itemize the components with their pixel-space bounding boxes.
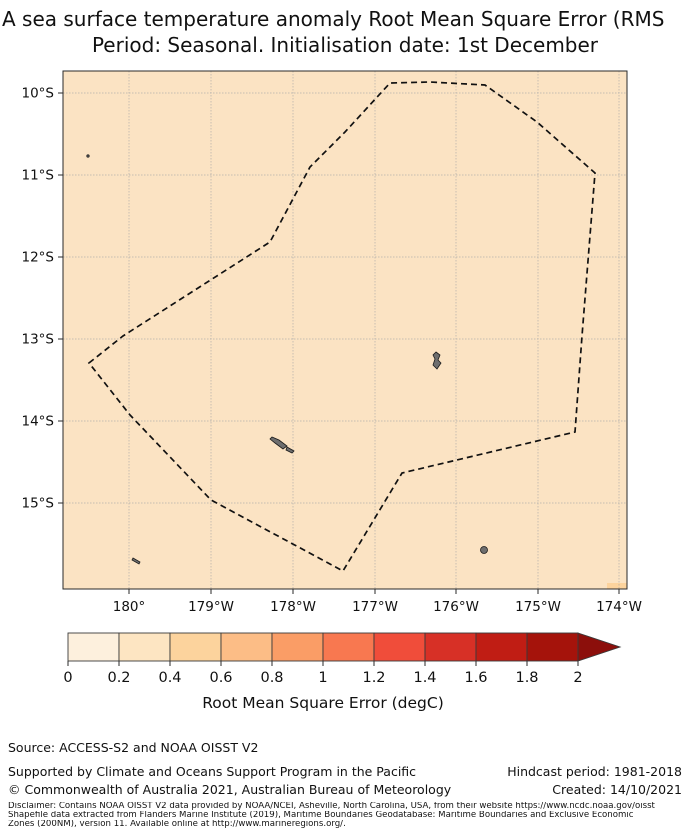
cbar-seg-4 <box>272 633 323 661</box>
y-tick-label: 12°S <box>22 250 55 266</box>
x-tick-label: 179°W <box>188 599 234 615</box>
cbar-seg-2 <box>170 633 221 661</box>
island-south-icon <box>481 547 488 554</box>
y-axis-tick-labels: 10°S 11°S 12°S 13°S 14°S 15°S <box>22 86 55 512</box>
cbar-seg-9 <box>527 633 578 661</box>
cbar-tick-label: 1.8 <box>515 670 538 686</box>
cbar-tick-label: 0 <box>63 670 72 686</box>
copyright-line: © Commonwealth of Australia 2021, Austra… <box>8 782 451 798</box>
cbar-tick-label: 2 <box>573 670 582 686</box>
cbar-extend-arrow <box>578 633 620 661</box>
y-tick-label: 13°S <box>22 332 55 348</box>
figure-title-line2: Period: Seasonal. Initialisation date: 1… <box>0 32 690 58</box>
y-tick-label: 15°S <box>22 496 55 512</box>
x-tick-label: 175°W <box>515 599 561 615</box>
x-tick-label: 177°W <box>352 599 398 615</box>
source-line: Source: ACCESS-S2 and NOAA OISST V2 <box>8 740 258 756</box>
y-tick-label: 10°S <box>22 86 55 102</box>
cbar-tick-label: 1 <box>318 670 327 686</box>
created-date: Created: 14/10/2021 <box>552 782 682 798</box>
cbar-tick-label: 0.2 <box>107 670 130 686</box>
y-tick-label: 14°S <box>22 414 55 430</box>
cbar-seg-7 <box>425 633 476 661</box>
x-axis-ticks <box>129 589 619 594</box>
cbar-tick-label: 1.2 <box>362 670 385 686</box>
colorbar-segments <box>68 633 620 661</box>
x-tick-label: 176°W <box>433 599 479 615</box>
colorbar-tick-labels: 0 0.2 0.4 0.6 0.8 1 1.2 1.4 1.6 1.8 2 <box>63 670 582 686</box>
cbar-seg-3 <box>221 633 272 661</box>
colorbar-axis-label: Root Mean Square Error (degC) <box>202 694 444 712</box>
supported-line: Supported by Climate and Oceans Support … <box>8 764 416 780</box>
cbar-tick-label: 1.4 <box>413 670 436 686</box>
hindcast-period: Hindcast period: 1981-2018 <box>507 764 682 780</box>
x-tick-label: 180° <box>113 599 146 615</box>
ocean-fill <box>63 71 627 589</box>
disclaimer-line-2: Shapefile data extracted from Flanders M… <box>8 811 690 820</box>
disclaimer-block: Disclaimer: Contains NOAA OISST V2 data … <box>8 802 690 829</box>
cbar-tick-label: 0.6 <box>209 670 232 686</box>
cbar-seg-8 <box>476 633 527 661</box>
cbar-tick-label: 0.8 <box>260 670 283 686</box>
cbar-seg-0 <box>68 633 119 661</box>
map-plot: 180° 179°W 178°W 177°W 176°W 175°W 174°W… <box>0 60 690 625</box>
cbar-seg-5 <box>323 633 374 661</box>
figure-title-line1: A sea surface temperature anomaly Root M… <box>2 6 690 32</box>
y-axis-ticks <box>58 93 63 503</box>
figure: A sea surface temperature anomaly Root M… <box>0 0 690 839</box>
disclaimer-line-3: Zones (200NM), version 11. Available onl… <box>8 820 690 829</box>
y-tick-label: 11°S <box>22 168 55 184</box>
hotspot-cell <box>607 583 627 589</box>
cbar-seg-6 <box>374 633 425 661</box>
disclaimer-line-1: Disclaimer: Contains NOAA OISST V2 data … <box>8 802 690 811</box>
cbar-tick-label: 0.4 <box>158 670 181 686</box>
x-axis-tick-labels: 180° 179°W 178°W 177°W 176°W 175°W 174°W <box>113 599 642 615</box>
colorbar-ticks <box>68 661 578 666</box>
cbar-seg-1 <box>119 633 170 661</box>
x-tick-label: 178°W <box>270 599 316 615</box>
x-tick-label: 174°W <box>596 599 642 615</box>
islet-northwest-icon <box>87 155 89 157</box>
colorbar: 0 0.2 0.4 0.6 0.8 1 1.2 1.4 1.6 1.8 2 Ro… <box>0 622 690 722</box>
cbar-tick-label: 1.6 <box>464 670 487 686</box>
